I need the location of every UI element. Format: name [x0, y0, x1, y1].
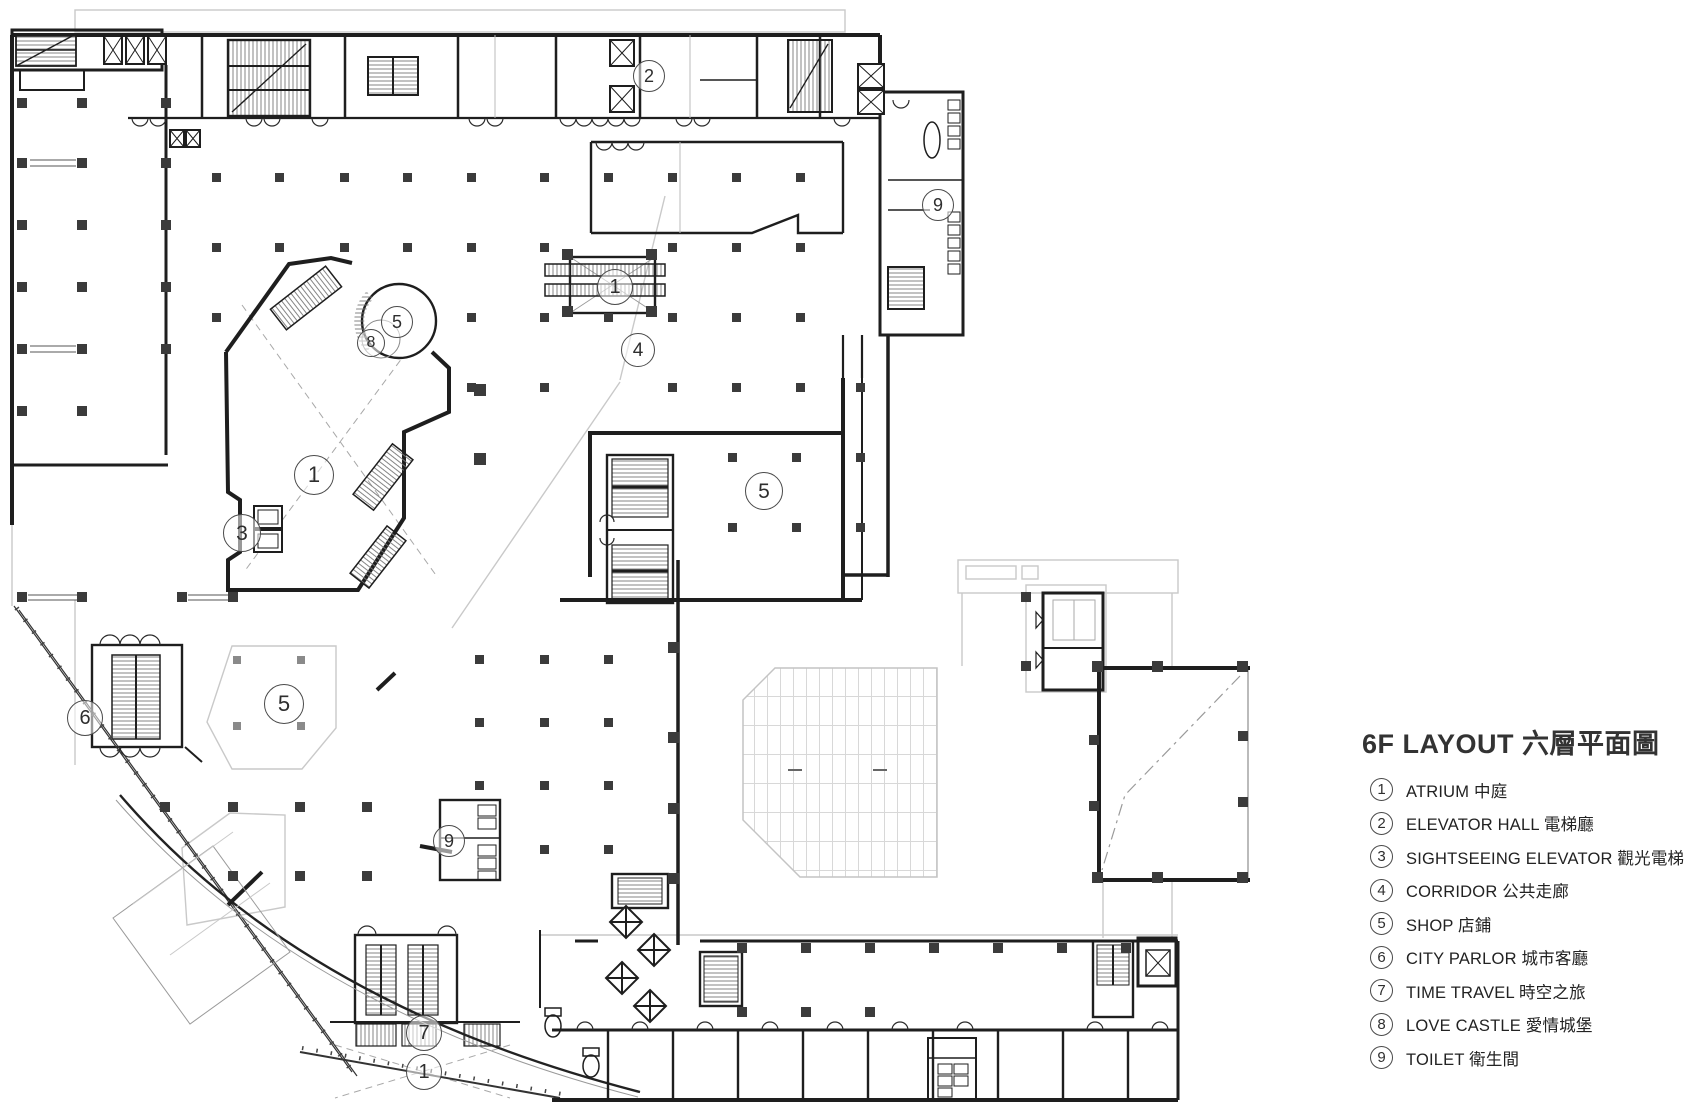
annex-service-block	[1036, 593, 1103, 690]
legend-item-time-travel: 7 TIME TRAVEL 時空之旅	[1370, 979, 1696, 1002]
stair-elevator-southeast	[1093, 938, 1176, 1017]
marker-love-castle: 8	[357, 329, 385, 357]
legend: 6F LAYOUT 六層平面圖 1 ATRIUM 中庭 2 ELEVATOR H…	[1356, 722, 1696, 1080]
annex-big-room	[1097, 668, 1250, 880]
elevator-bank-northeast	[858, 64, 884, 114]
legend-num-3: 3	[1370, 845, 1393, 868]
legend-num-1: 1	[1370, 778, 1393, 801]
tie-rods	[28, 160, 228, 600]
toilet-south	[928, 1038, 976, 1100]
legend-num-8: 8	[1370, 1013, 1393, 1036]
legend-item-love-castle: 8 LOVE CASTLE 愛情城堡	[1370, 1013, 1696, 1036]
legend-num-9: 9	[1370, 1046, 1393, 1069]
legend-num-2: 2	[1370, 812, 1393, 835]
marker-toilet-north: 9	[922, 189, 954, 221]
marker-elevator-hall: 2	[633, 60, 665, 92]
legend-item-elevator-hall: 2 ELEVATOR HALL 電梯廳	[1370, 812, 1696, 835]
elevator-bank-northwest	[104, 36, 200, 147]
marker-city-parlor: 6	[67, 700, 103, 736]
marker-shop-east: 5	[745, 472, 783, 510]
shop-east	[560, 335, 862, 603]
legend-num-6: 6	[1370, 946, 1393, 969]
marker-shop-southwest: 5	[264, 684, 304, 724]
legend-item-atrium: 1 ATRIUM 中庭	[1370, 778, 1696, 801]
courtyard-grid	[743, 668, 937, 877]
legend-num-5: 5	[1370, 912, 1393, 935]
marker-shop-round: 5	[381, 306, 413, 338]
legend-title: 6F LAYOUT 六層平面圖	[1362, 722, 1696, 761]
floorplan-page: 2 9 1 5 8 4 1 5 3 5 6 9 7 1 6F LAYOUT 六層…	[0, 0, 1700, 1116]
marker-sightseeing-elevator: 3	[223, 514, 261, 552]
escalator-top-center	[228, 40, 310, 116]
marker-atrium-escalator: 1	[597, 269, 633, 305]
marker-corridor: 4	[621, 333, 655, 367]
marker-atrium-main: 1	[294, 455, 334, 495]
marker-toilet-center: 9	[433, 825, 465, 857]
legend-item-corridor: 4 CORRIDOR 公共走廊	[1370, 879, 1696, 902]
elevator-hall-shafts	[610, 40, 634, 112]
city-parlor-escalator	[92, 645, 202, 762]
elevator-cluster-diagonal	[606, 874, 742, 1022]
legend-item-toilet: 9 TOILET 衛生間	[1370, 1046, 1696, 1069]
legend-item-shop: 5 SHOP 店鋪	[1370, 912, 1696, 935]
marker-atrium-south: 1	[406, 1054, 442, 1090]
shop-center-top	[591, 142, 843, 233]
legend-item-sightseeing-elevator: 3 SIGHTSEEING ELEVATOR 觀光電梯	[1370, 845, 1696, 868]
bottom-wing-walls	[540, 930, 1178, 1100]
stair-top-center	[368, 57, 418, 95]
legend-item-city-parlor: 6 CITY PARLOR 城市客廳	[1370, 946, 1696, 969]
escalator-top-east	[788, 40, 832, 112]
faint-reference-lines	[12, 10, 1178, 938]
legend-num-7: 7	[1370, 979, 1393, 1002]
marker-time-travel: 7	[406, 1015, 442, 1051]
legend-num-4: 4	[1370, 879, 1393, 902]
phase-line	[1102, 676, 1240, 870]
